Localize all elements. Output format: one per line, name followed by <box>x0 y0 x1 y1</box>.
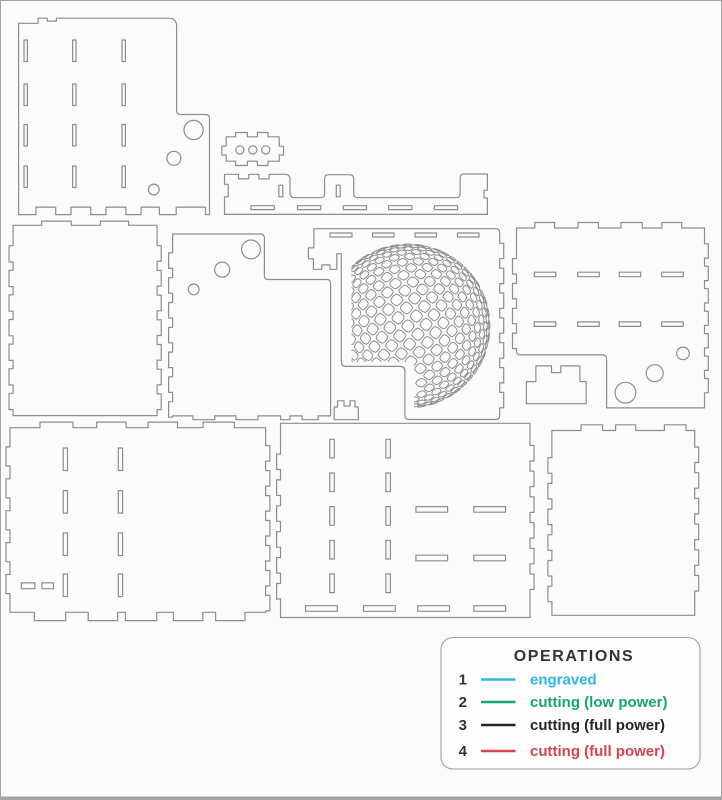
svg-text:cutting (full power): cutting (full power) <box>530 743 665 760</box>
svg-text:1: 1 <box>459 672 467 689</box>
svg-text:engraved: engraved <box>530 672 597 689</box>
svg-text:cutting (low power): cutting (low power) <box>530 694 667 711</box>
svg-text:3: 3 <box>459 717 467 734</box>
svg-text:4: 4 <box>459 743 468 760</box>
svg-text:OPERATIONS: OPERATIONS <box>514 648 635 665</box>
svg-text:2: 2 <box>459 694 467 711</box>
svg-text:cutting (full power): cutting (full power) <box>530 717 665 734</box>
